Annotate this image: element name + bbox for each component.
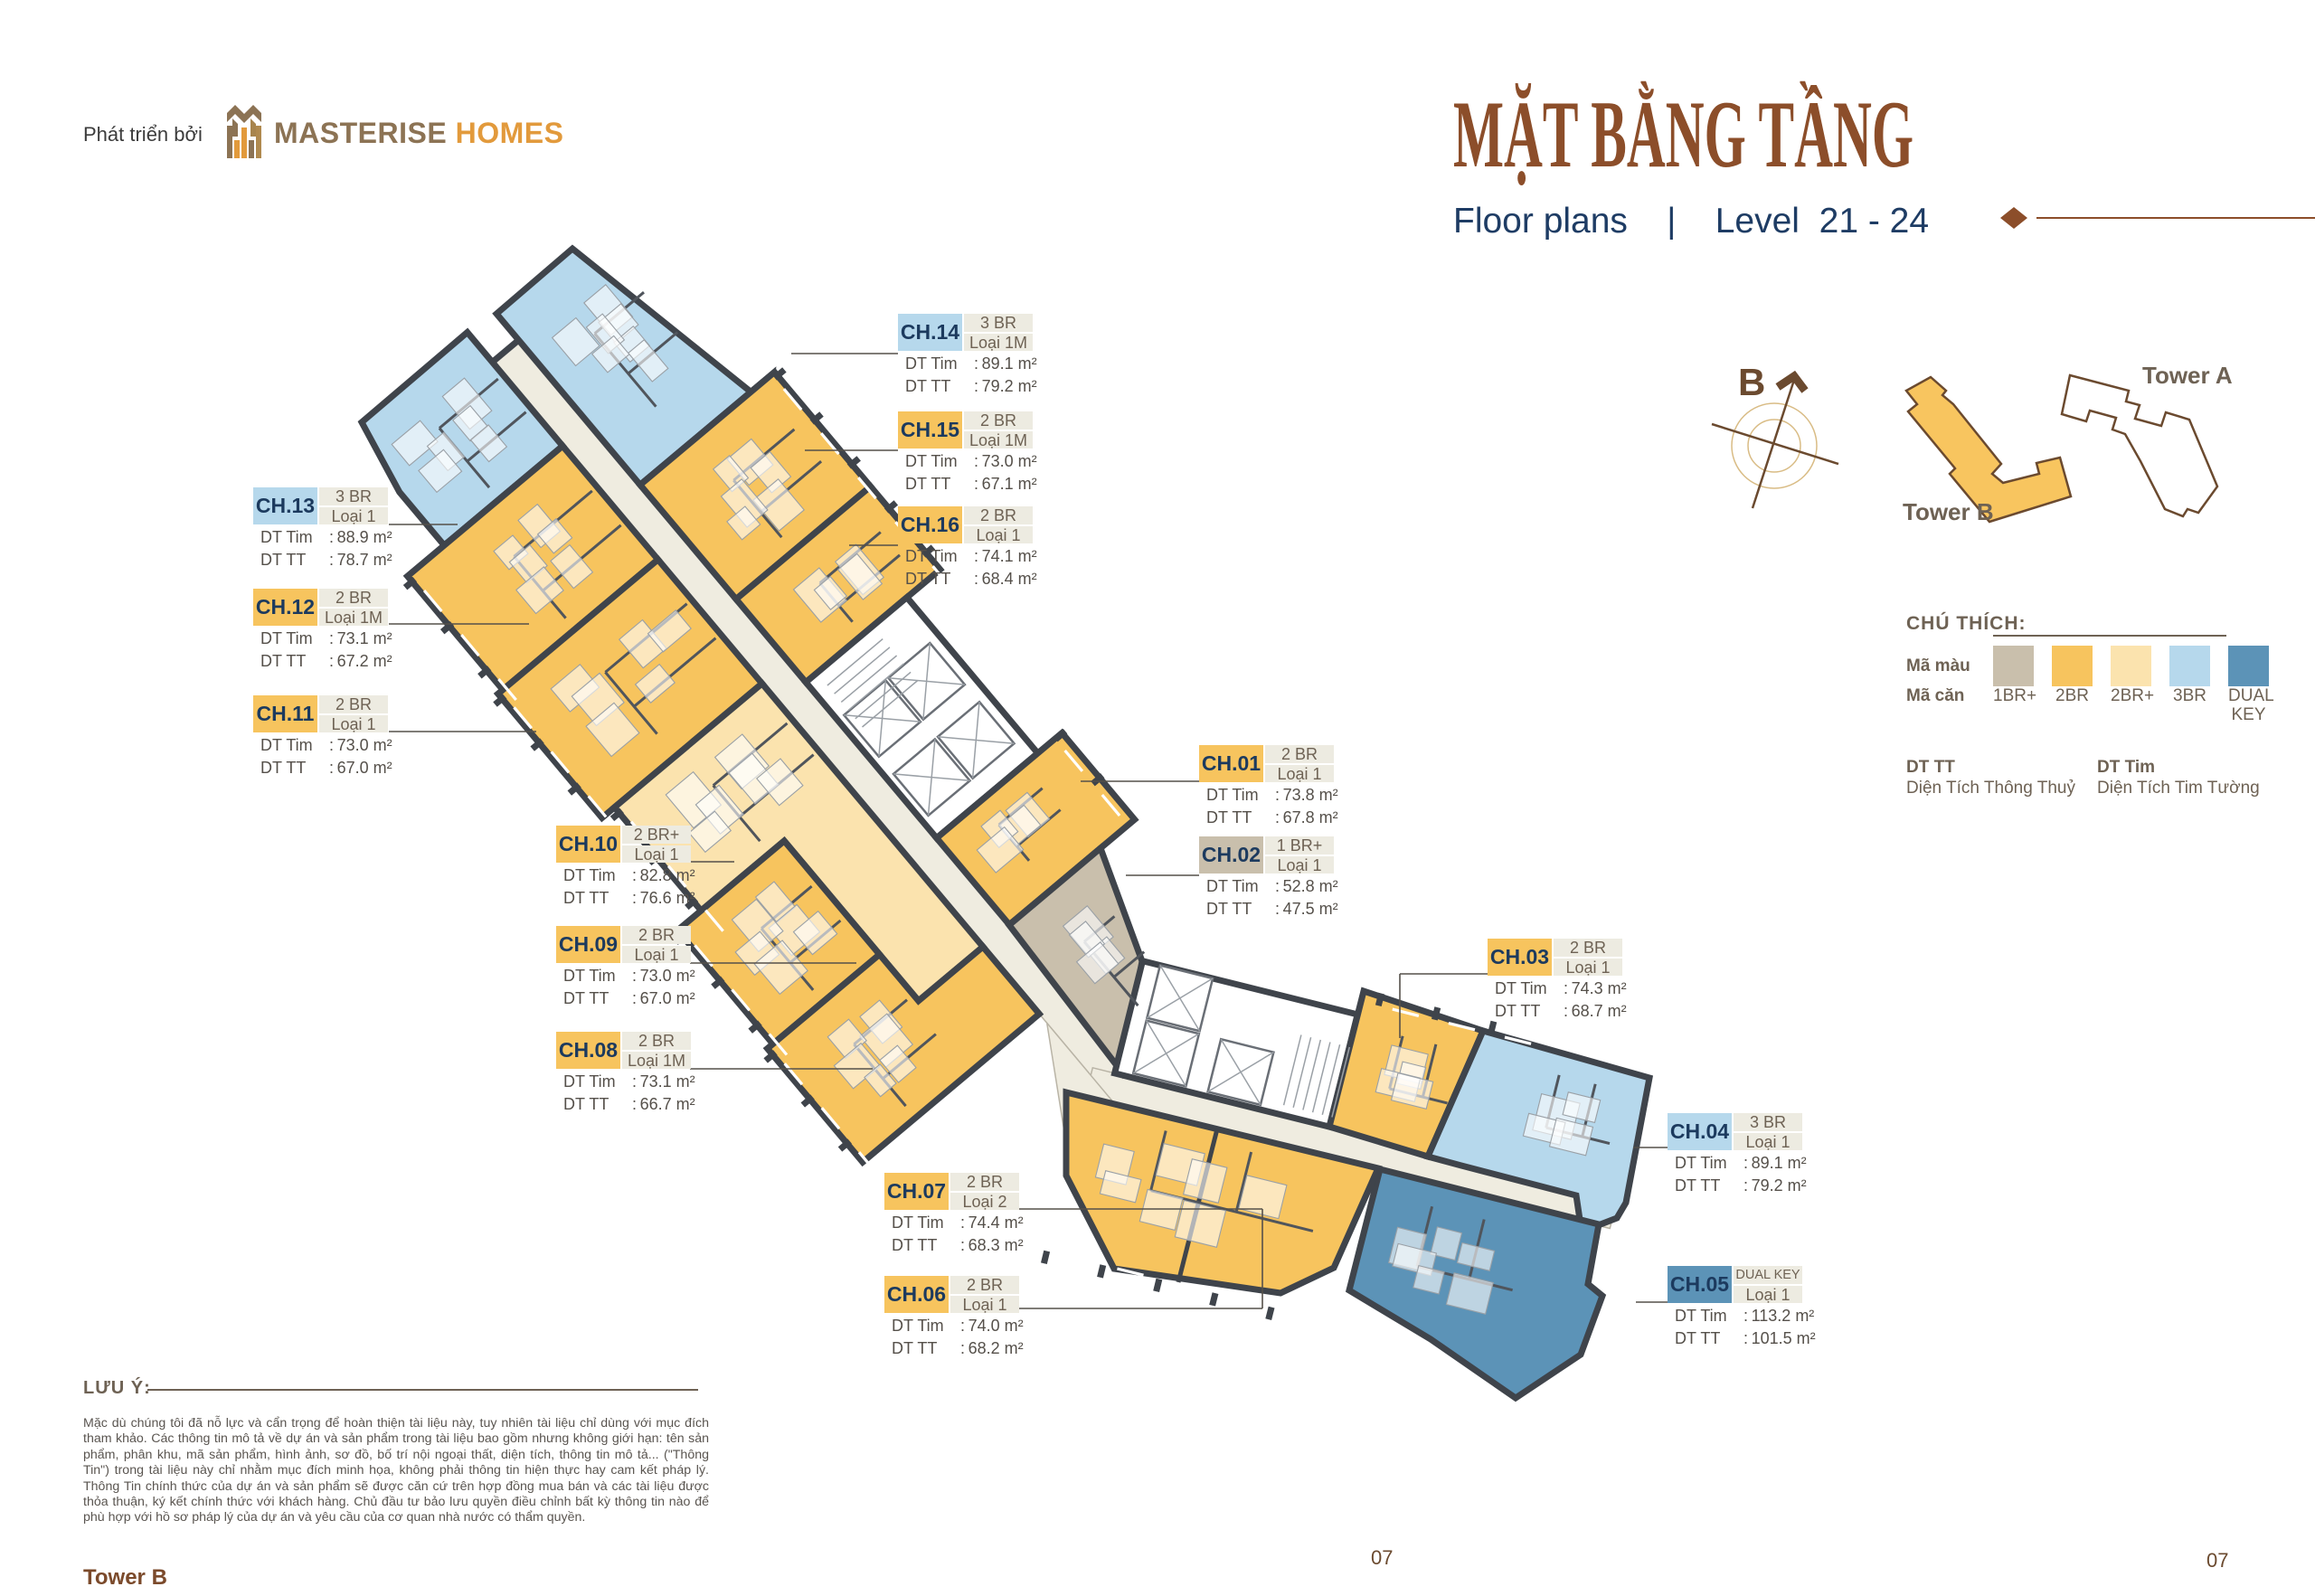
svg-text:B: B	[1738, 361, 1765, 403]
